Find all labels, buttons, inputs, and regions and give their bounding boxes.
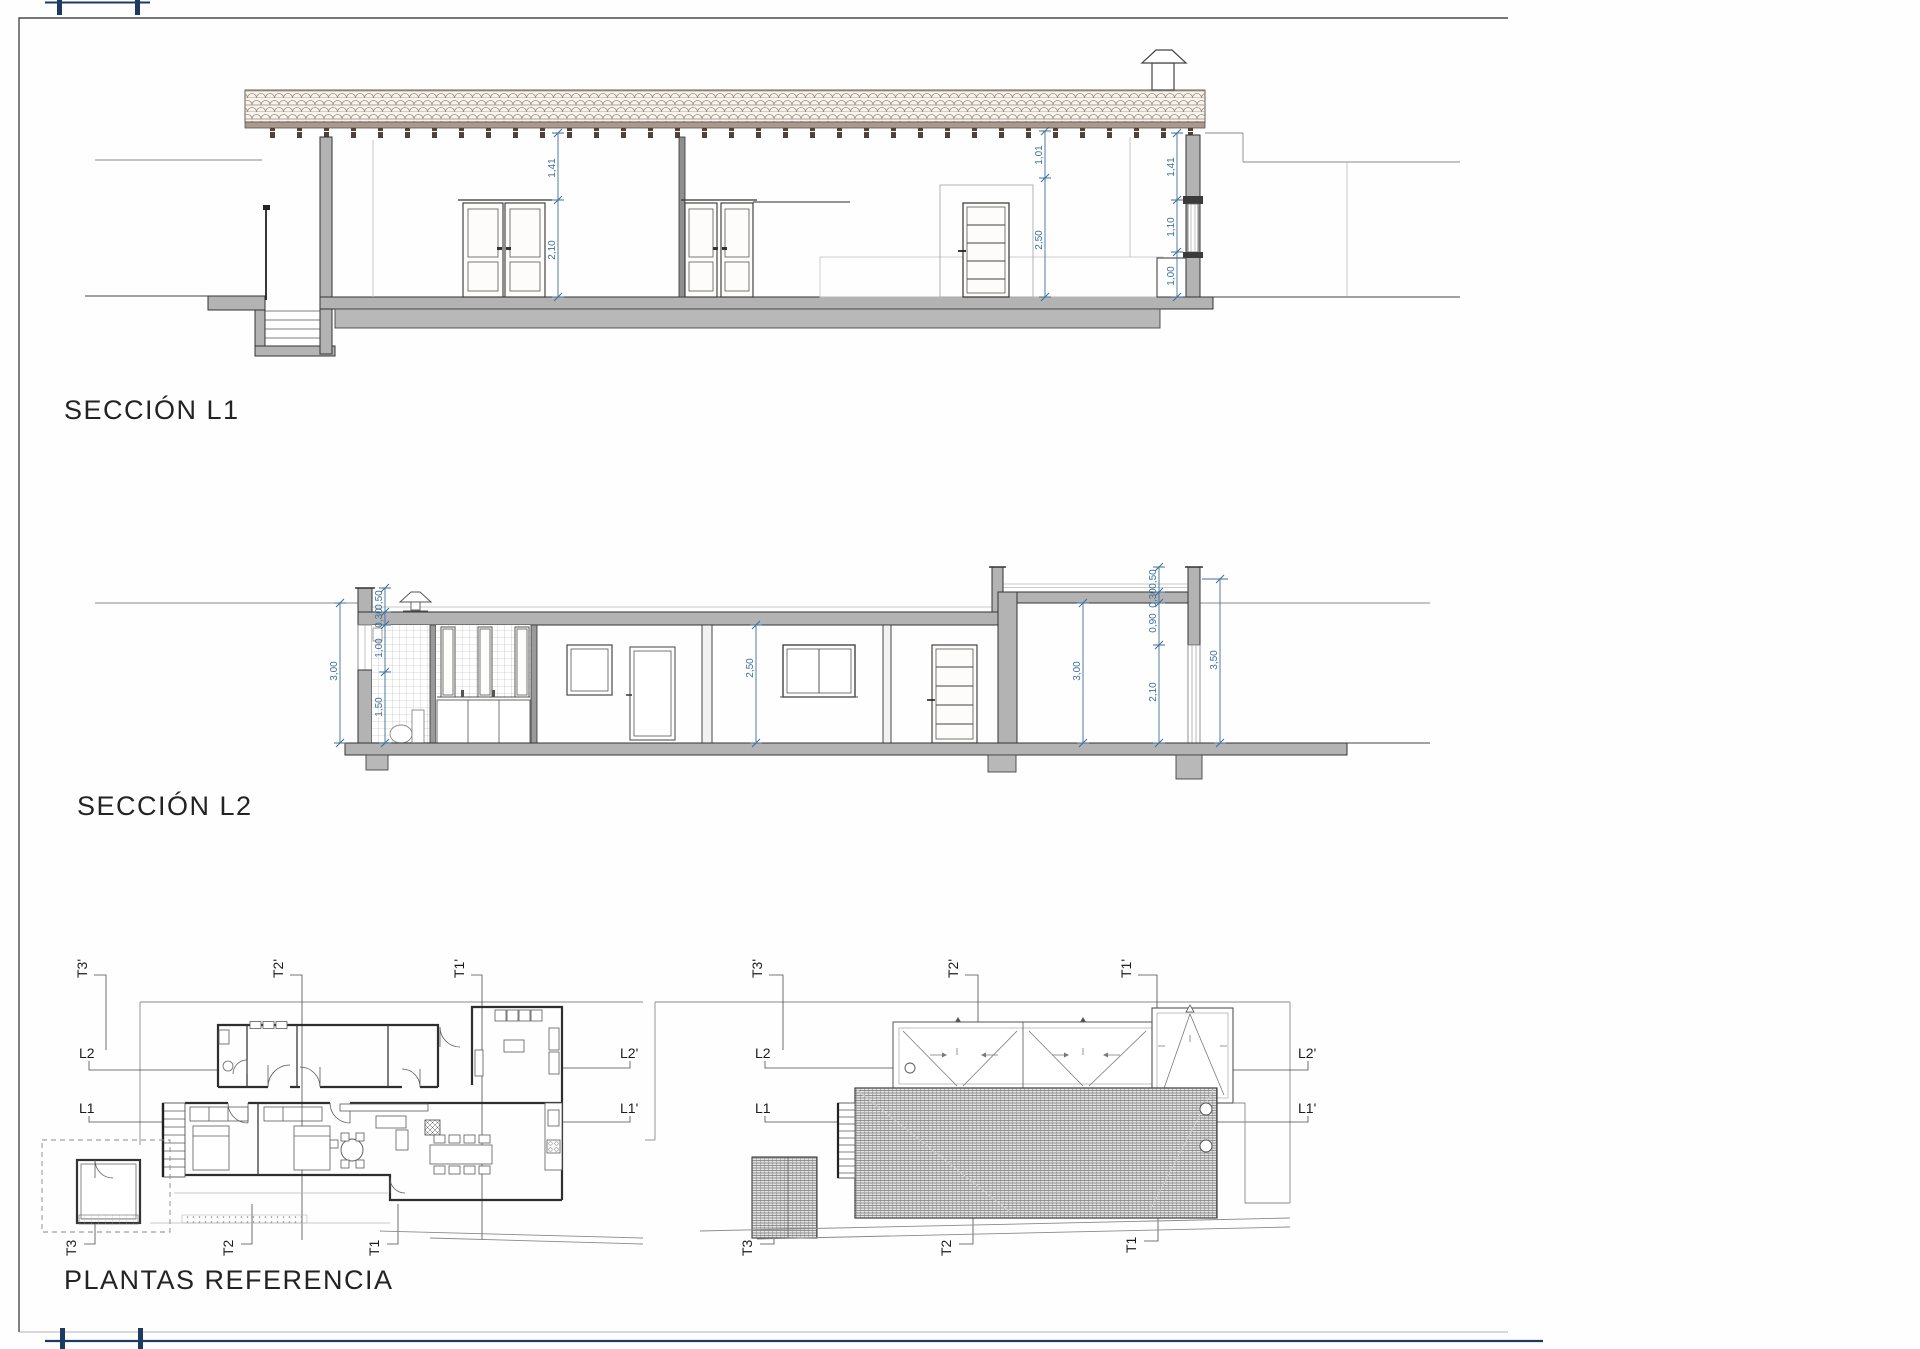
section-marker-l1-prime: L1' xyxy=(1298,1100,1316,1116)
crop-mark-bottom-left xyxy=(60,1328,65,1349)
section-marker-t2: T2 xyxy=(938,1239,954,1256)
floor-slab xyxy=(345,743,1347,755)
closet xyxy=(264,1107,322,1121)
section-marker-l2: L2 xyxy=(755,1045,771,1061)
glazed-right-wall xyxy=(1188,645,1200,743)
section-marker-t1-prime: T1' xyxy=(1118,959,1134,978)
section-l2-floor xyxy=(345,743,1430,779)
section-l1-dimensions: 1,41 2,10 1,01 2,50 1,41 1,10 1,00 xyxy=(547,127,1183,301)
section-marker-l2-prime: L2' xyxy=(1298,1045,1316,1061)
section-marker-t2: T2 xyxy=(220,1239,236,1256)
toilet-plan xyxy=(223,1061,233,1071)
section-marker-t2-prime: T2' xyxy=(270,959,286,978)
round-table xyxy=(341,1139,363,1161)
architectural-drawing: 1,41 2,10 1,01 2,50 1,41 1,10 1,00 SECCI… xyxy=(0,0,1920,1349)
section-marker-l1: L1 xyxy=(79,1100,95,1116)
dim-label: 3,50 xyxy=(1209,650,1220,670)
section-marker-t3: T3 xyxy=(739,1239,755,1256)
double-door-1 xyxy=(458,200,552,297)
chimney xyxy=(1142,50,1186,90)
thick-wall xyxy=(998,592,1017,743)
stairs-plan-right xyxy=(838,1103,855,1178)
section-marker-t1: T1 xyxy=(1123,1236,1139,1253)
door-arc xyxy=(390,1178,405,1193)
drawing-sheet: 1,41 2,10 1,01 2,50 1,41 1,10 1,00 SECCI… xyxy=(0,0,1920,1349)
bed xyxy=(294,1126,330,1170)
crop-mark-top-right xyxy=(135,0,140,15)
section-marker-t2-prime: T2' xyxy=(945,959,961,978)
bathroom-wall xyxy=(430,625,436,743)
section-l1-terrain-lines xyxy=(85,133,1460,297)
dim-label: 1,00 xyxy=(1166,266,1177,286)
door-arc xyxy=(300,1067,320,1087)
dim-label: 1,01 xyxy=(1034,145,1045,165)
faucet xyxy=(492,690,495,697)
faucet xyxy=(461,690,464,697)
chimney-plan xyxy=(1200,1140,1212,1152)
chimney-cap xyxy=(1142,50,1186,63)
plan-left-lower-wing xyxy=(163,1103,562,1200)
section-l1-structure xyxy=(320,137,1213,354)
section-marker-t3: T3 xyxy=(63,1239,79,1256)
plans-title: PLANTAS REFERENCIA xyxy=(64,1265,394,1295)
garage-roof xyxy=(752,1157,817,1238)
section-marker-l1: L1 xyxy=(755,1100,771,1116)
dim-label: 1,41 xyxy=(547,158,558,178)
door-handle xyxy=(497,247,502,250)
dim-label: 2,50 xyxy=(1034,230,1045,250)
section-l2-vanity xyxy=(436,625,537,743)
section-marker-t3-prime: T3' xyxy=(749,959,765,978)
section-l2: 3,00 0,50 0,30 1,00 1,50 2,50 3,00 0,50 … xyxy=(77,563,1430,821)
vanity-counter xyxy=(437,700,530,743)
sofa xyxy=(396,1130,408,1150)
section-l1-title: SECCIÓN L1 xyxy=(64,394,240,425)
door-arc xyxy=(233,1060,247,1074)
dining-set xyxy=(430,1135,492,1174)
armchair xyxy=(549,1028,559,1050)
section-marker-l2: L2 xyxy=(79,1045,95,1061)
section-marker-t1-prime: T1' xyxy=(451,959,467,978)
dim-label: 0,30 xyxy=(374,608,385,628)
flat-roof-slab xyxy=(358,612,1003,625)
door-handle xyxy=(506,247,511,250)
sink-plan xyxy=(219,1030,229,1044)
section-l2-left-wall xyxy=(358,625,372,743)
stairs-plan xyxy=(163,1103,185,1177)
dim-label: 1,41 xyxy=(1166,157,1177,177)
kitchen xyxy=(545,1103,562,1170)
dim-label: 0,50 xyxy=(1148,569,1159,589)
section-marker-l1-prime: L1' xyxy=(620,1100,638,1116)
dim-label: 3,00 xyxy=(1072,661,1083,681)
section-l2-title: SECCIÓN L2 xyxy=(77,790,253,821)
chimney-plan xyxy=(1200,1103,1212,1115)
partition-wall xyxy=(702,625,712,743)
section-l1-right-wall xyxy=(1157,135,1203,297)
slat-door-l2 xyxy=(927,645,977,743)
interior-partition xyxy=(679,137,685,297)
roof-board xyxy=(245,122,1205,128)
section-marker-t3-prime: T3' xyxy=(74,959,90,978)
plan-right: T3' T2' T1' L2 L1 L2' L1' T3 T2 T1 xyxy=(645,959,1316,1256)
armchair xyxy=(549,1052,559,1074)
sheet-frame xyxy=(19,18,1508,1332)
dim-label: 1,50 xyxy=(374,697,385,717)
left-cut-wall xyxy=(320,137,332,297)
closet xyxy=(190,1107,248,1121)
window xyxy=(567,645,612,695)
left-parapet xyxy=(358,588,372,612)
gravel-strip xyxy=(182,1215,307,1223)
dim-label: 0,50 xyxy=(374,590,385,610)
section-marker-l2-prime: L2' xyxy=(620,1045,638,1061)
partition-wall xyxy=(883,625,891,743)
window-lintel xyxy=(1183,196,1203,204)
crop-mark-bottom-right xyxy=(138,1328,143,1349)
dim-label: 2,10 xyxy=(1148,682,1159,702)
roof-drain xyxy=(905,1063,915,1073)
dim-label: 2,50 xyxy=(745,658,756,678)
tv-unit xyxy=(475,1050,483,1076)
double-door-2 xyxy=(681,200,757,297)
garage-threshold xyxy=(79,1215,138,1224)
roof-rafters xyxy=(250,128,1202,138)
dim-label: 0,90 xyxy=(1148,613,1159,633)
dim-label: 2,10 xyxy=(547,240,558,260)
dim-label: 0,30 xyxy=(1148,588,1159,608)
window xyxy=(1188,204,1198,252)
raised-right-parapet xyxy=(1188,567,1200,645)
double-window xyxy=(780,645,858,697)
window-sill xyxy=(1183,252,1203,258)
main-tiled-roof xyxy=(855,1088,1217,1218)
foundation-band xyxy=(335,309,1160,328)
sofa xyxy=(376,1116,406,1128)
section-l1-stairs xyxy=(208,205,335,356)
door-arc xyxy=(402,1069,420,1087)
section-l1: 1,41 2,10 1,01 2,50 1,41 1,10 1,00 SECCI… xyxy=(64,50,1460,425)
dim-label: 1,00 xyxy=(374,638,385,658)
fireplace xyxy=(425,1120,440,1135)
bed xyxy=(193,1126,229,1170)
sideboard xyxy=(340,1104,428,1111)
plan-left: T3' T2' T1' L2 L1 L2' L1' T3 T2 T1 xyxy=(42,959,643,1256)
door xyxy=(630,647,675,740)
slat-door xyxy=(940,185,1033,297)
section-l1-roof xyxy=(245,50,1205,138)
dim-label: 1,10 xyxy=(1166,217,1177,237)
door-arc xyxy=(268,1065,290,1087)
coffee-table xyxy=(504,1040,524,1052)
section-marker-t1: T1 xyxy=(366,1239,382,1256)
door-arc xyxy=(440,1027,460,1047)
floor-slab xyxy=(320,297,1213,309)
dim-label: 3,00 xyxy=(329,661,340,681)
plan-left-garage xyxy=(42,1140,170,1232)
plan-left-upper-wing xyxy=(218,1022,438,1088)
crop-mark-top-left xyxy=(57,0,62,15)
roof-vent-cap xyxy=(400,592,431,611)
